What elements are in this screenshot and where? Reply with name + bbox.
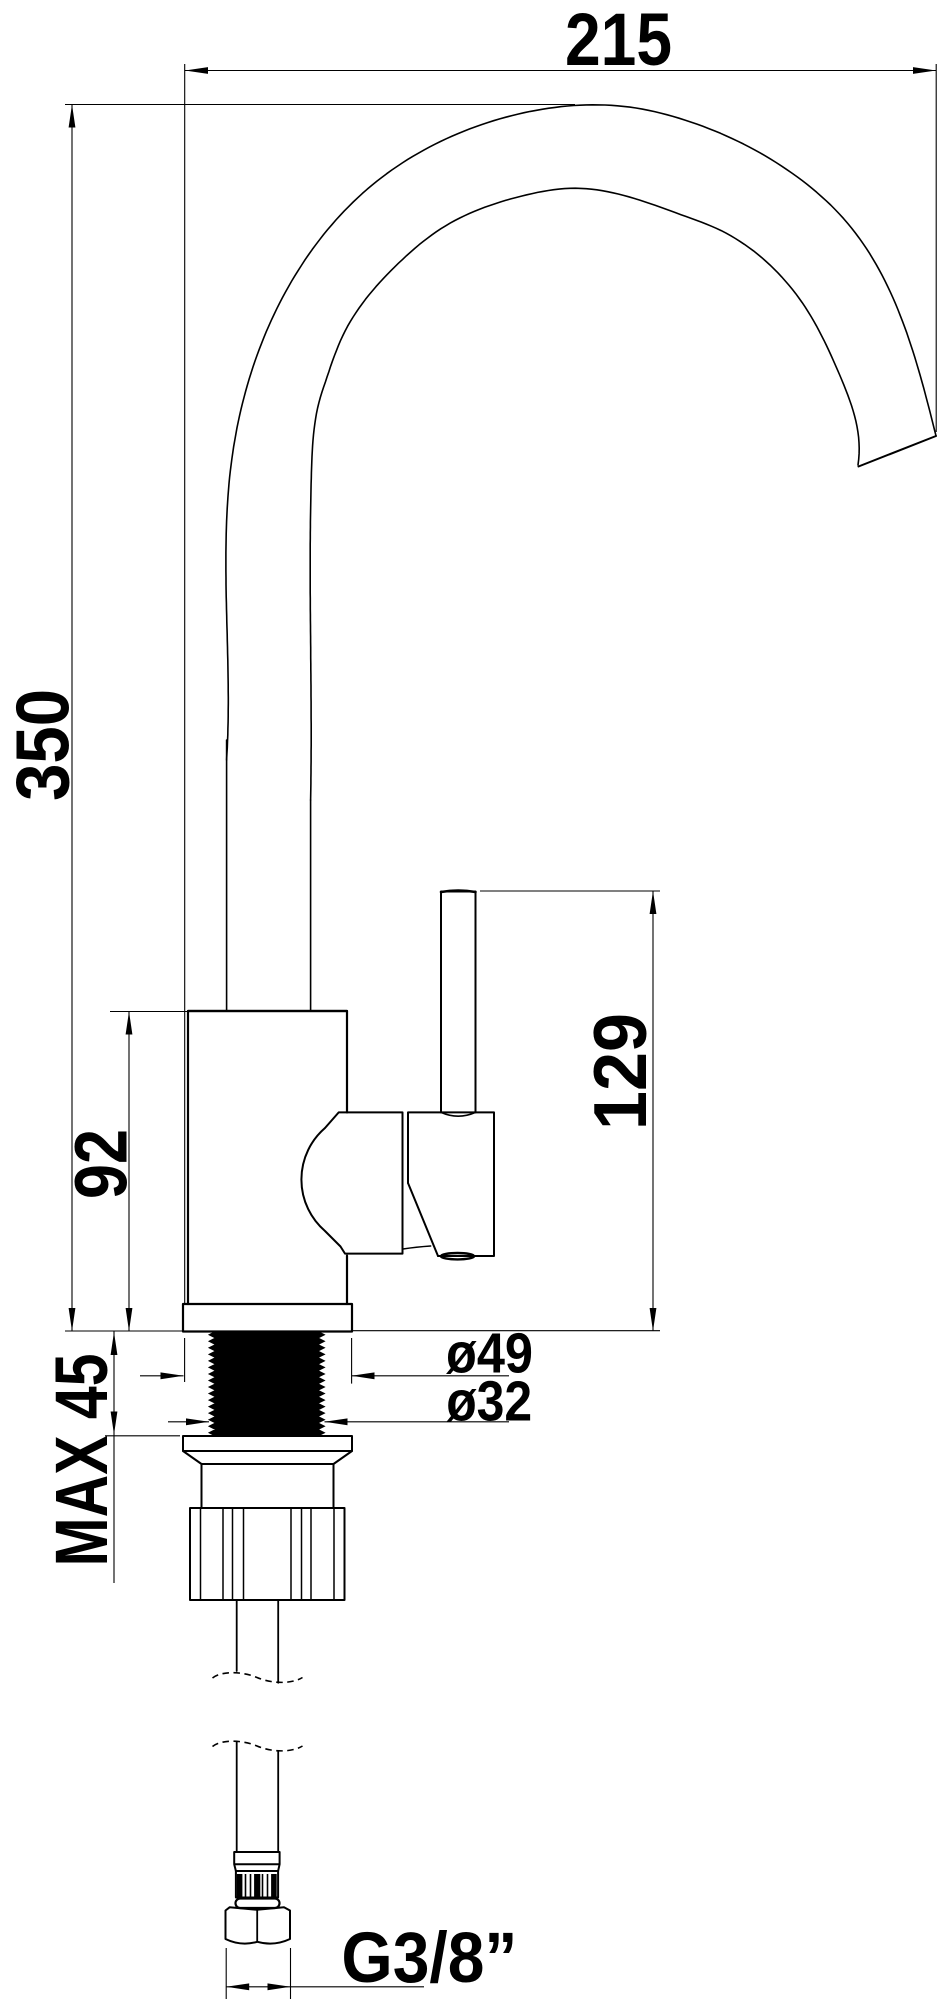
svg-text:ø32: ø32 [446,1369,532,1433]
svg-text:MAX 45: MAX 45 [40,1354,123,1567]
svg-text:215: 215 [565,0,672,81]
svg-text:G3/8”: G3/8” [341,1919,517,1998]
svg-text:129: 129 [578,1013,662,1130]
svg-text:350: 350 [1,689,85,801]
svg-text:92: 92 [59,1129,142,1199]
